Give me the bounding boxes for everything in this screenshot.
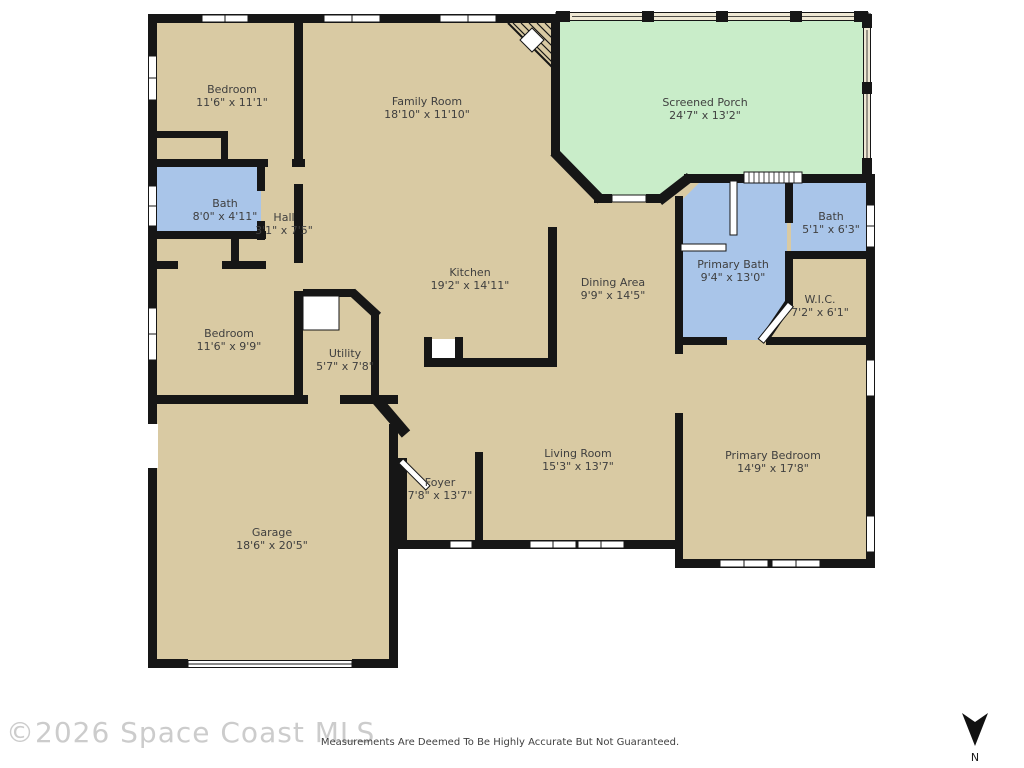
room-label-primary-bedroom: Primary Bedroom14'9" x 17'8" [725, 450, 821, 475]
room-dims: 14'9" x 17'8" [725, 463, 821, 476]
room-dims: 7'2" x 6'1" [791, 307, 849, 320]
room-label-dining-area: Dining Area9'9" x 14'5" [581, 277, 646, 302]
utility-appliance [303, 296, 339, 330]
room-label-bedroom-2: Bedroom11'6" x 9'9" [197, 328, 262, 353]
room-name: Family Room [384, 96, 470, 109]
room-dims: 19'2" x 14'11" [431, 280, 510, 293]
room-label-bedroom-1: Bedroom11'6" x 11'1" [196, 84, 268, 109]
room-label-utility: Utility5'7" x 7'8" [316, 348, 374, 373]
room-name: Living Room [542, 448, 614, 461]
room-name: Bedroom [196, 84, 268, 97]
room-name: Dining Area [581, 277, 646, 290]
north-label: N [961, 751, 989, 764]
room-label-garage: Garage18'6" x 20'5" [236, 527, 308, 552]
room-label-bath-2: Bath5'1" x 6'3" [802, 211, 860, 236]
room-name: Foyer [408, 477, 473, 490]
room-label-kitchen: Kitchen19'2" x 14'11" [431, 267, 510, 292]
room-label-foyer: Foyer7'8" x 13'7" [408, 477, 473, 502]
room-label-family-room: Family Room18'10" x 11'10" [384, 96, 470, 121]
room-name: Bath [802, 211, 860, 224]
room-label-bath-1: Bath8'0" x 4'11" [193, 198, 258, 223]
north-arrow-icon [961, 711, 989, 747]
paned-window [744, 172, 802, 183]
room-dims: 18'6" x 20'5" [236, 540, 308, 553]
room-dims: 11'6" x 11'1" [196, 97, 268, 110]
shower-glass-vertical [730, 181, 737, 235]
room-dims: 11'6" x 9'9" [197, 341, 262, 354]
room-dims: 24'7" x 13'2" [662, 110, 747, 123]
room-name: Screened Porch [662, 97, 747, 110]
porch-door [612, 195, 646, 202]
room-name: Primary Bedroom [725, 450, 821, 463]
shower-glass-horizontal [681, 244, 726, 251]
compass: N [961, 711, 989, 764]
room-name: W.I.C. [791, 294, 849, 307]
room-label-living-room: Living Room15'3" x 13'7" [542, 448, 614, 473]
room-dims: 9'9" x 14'5" [581, 290, 646, 303]
room-name: Utility [316, 348, 374, 361]
floorplan-page: Bedroom11'6" x 11'1" Family Room18'10" x… [0, 0, 1024, 768]
room-name: Bedroom [197, 328, 262, 341]
room-name: Garage [236, 527, 308, 540]
room-dims: 9'4" x 13'0" [697, 272, 769, 285]
room-dims: 8'0" x 4'11" [193, 211, 258, 224]
room-dims: 7'8" x 13'7" [408, 490, 473, 503]
measurement-disclaimer: Measurements Are Deemed To Be Highly Acc… [0, 737, 1000, 748]
room-dims: 18'10" x 11'10" [384, 109, 470, 122]
floorplan-drawing [0, 0, 1024, 768]
room-dims: 15'3" x 13'7" [542, 461, 614, 474]
room-name: Hall [255, 212, 313, 225]
room-dims: 3'1" x 7'5" [255, 225, 313, 238]
room-name: Primary Bath [697, 259, 769, 272]
room-dims: 5'7" x 7'8" [316, 361, 374, 374]
room-label-primary-bath: Primary Bath9'4" x 13'0" [697, 259, 769, 284]
room-label-wic: W.I.C.7'2" x 6'1" [791, 294, 849, 319]
room-label-hall: Hall3'1" x 7'5" [255, 212, 313, 237]
room-name: Bath [193, 198, 258, 211]
room-name: Kitchen [431, 267, 510, 280]
room-label-screened-porch: Screened Porch24'7" x 13'2" [662, 97, 747, 122]
room-dims: 5'1" x 6'3" [802, 224, 860, 237]
kitchen-counter-inset [432, 339, 455, 358]
